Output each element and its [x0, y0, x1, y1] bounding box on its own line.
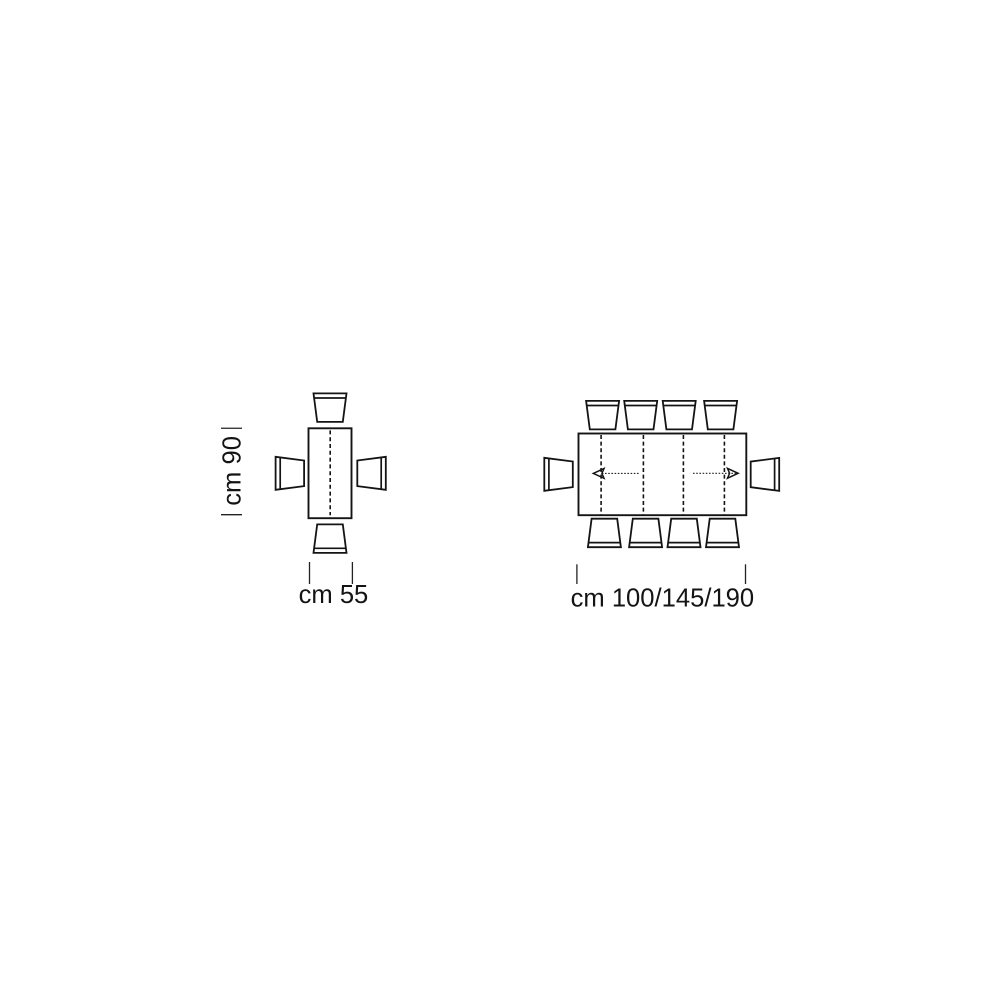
- svg-text:cm 90: cm 90: [218, 436, 246, 506]
- svg-text:cm 55: cm 55: [299, 581, 369, 609]
- svg-text:cm 100/145/190: cm 100/145/190: [571, 584, 755, 612]
